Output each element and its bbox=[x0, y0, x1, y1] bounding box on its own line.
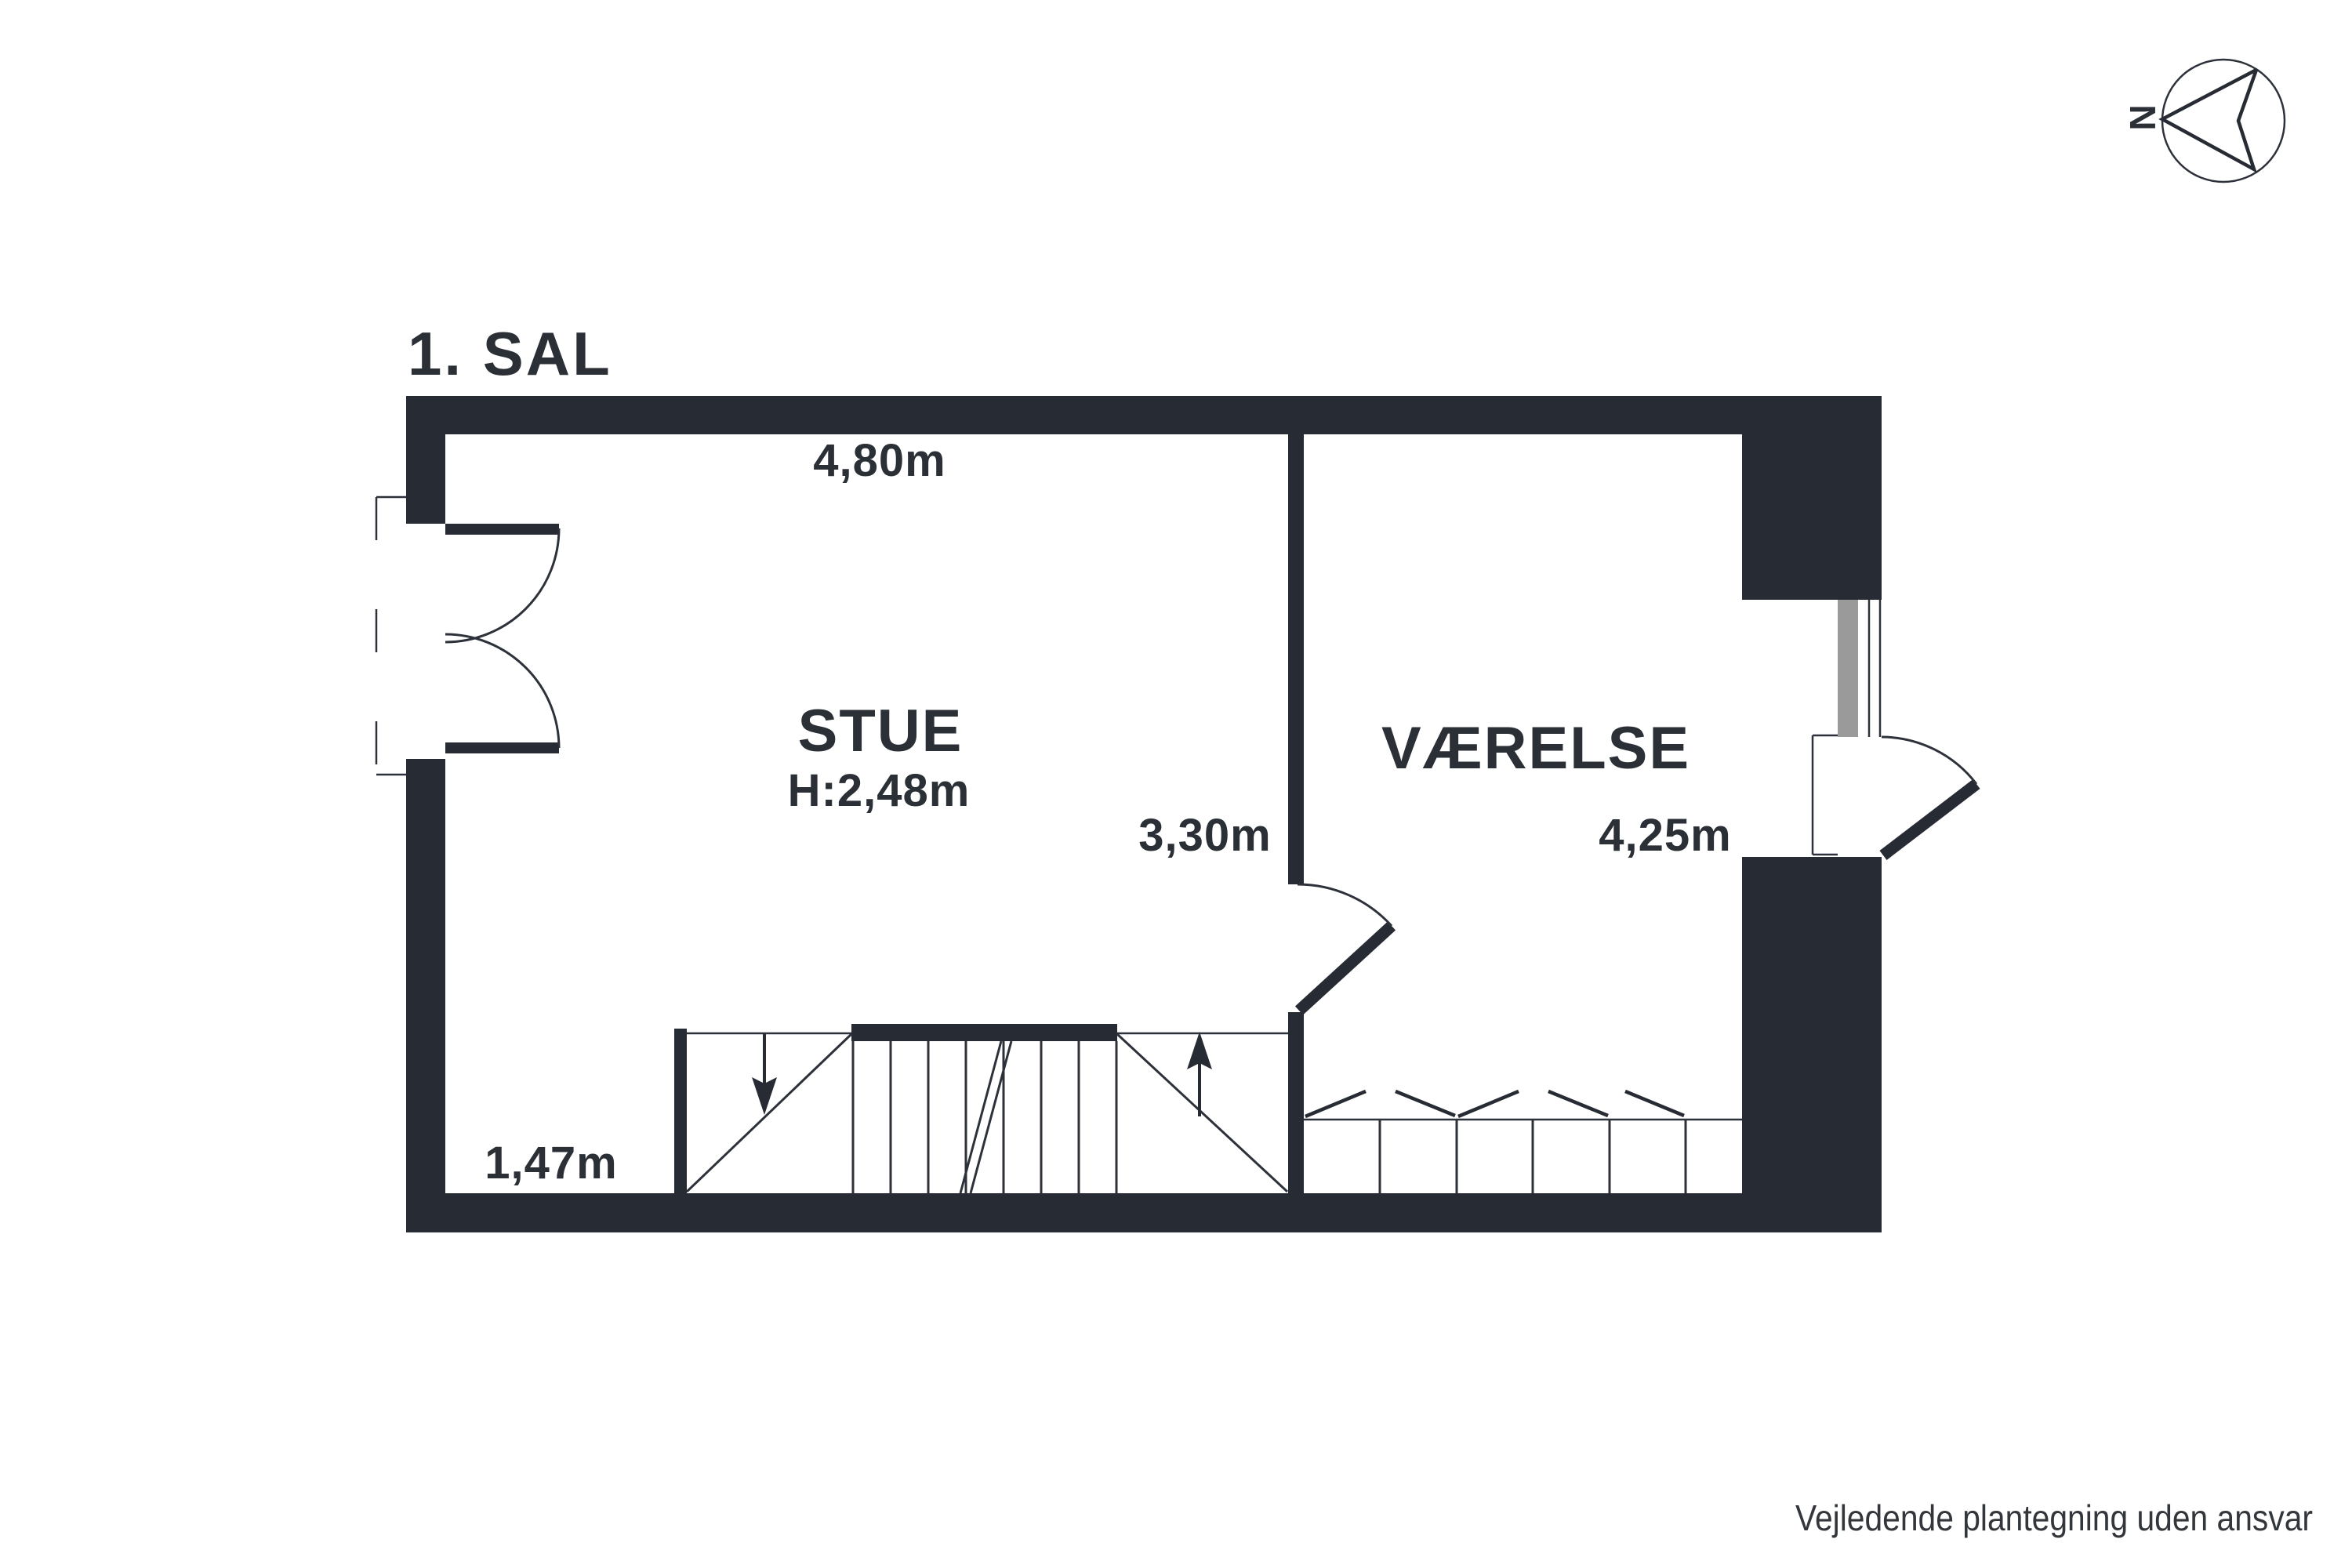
wall-right-lower-block bbox=[1742, 857, 1882, 1193]
divider-wall-upper bbox=[1288, 434, 1304, 884]
wardrobe-door-marks bbox=[1305, 1091, 1684, 1116]
interior-door bbox=[1298, 884, 1392, 1011]
stair-break-line-2 bbox=[971, 1041, 1011, 1193]
disclaimer-text: Vejledende plantegning uden ansvar bbox=[1795, 1497, 2313, 1538]
dim-vaerelse-width: 4,25m bbox=[1599, 810, 1731, 861]
room-label-stue: STUE bbox=[798, 698, 964, 764]
french-door-leaf-bottom bbox=[445, 742, 559, 753]
floor-title: 1. SAL bbox=[408, 319, 612, 388]
exterior-door-swing bbox=[1882, 737, 1976, 784]
balcony-doors bbox=[376, 497, 559, 775]
floorplan-page: N 1. SAL bbox=[0, 0, 2352, 1568]
french-door-swing-bottom bbox=[445, 634, 559, 748]
exterior-door bbox=[1813, 735, 1976, 855]
ceiling-height-stue: H:2,48m bbox=[788, 765, 971, 816]
stair-diagonal-left bbox=[687, 1034, 851, 1192]
divider-wall-lower bbox=[1288, 1012, 1304, 1193]
wall-left-upper bbox=[406, 396, 445, 524]
interior-wall bbox=[1288, 434, 1304, 1193]
wardrobe-dividers bbox=[1380, 1120, 1686, 1193]
dim-stue-depth: 3,30m bbox=[1138, 810, 1271, 861]
compass-circle bbox=[2162, 60, 2285, 182]
floorplan-canvas: N 1. SAL bbox=[0, 0, 2352, 1568]
wall-bottom bbox=[406, 1193, 1882, 1232]
wall-left-lower bbox=[406, 759, 445, 1232]
stair-landing-edge bbox=[851, 1024, 1117, 1041]
interior-door-leaf bbox=[1299, 926, 1392, 1011]
french-door-swing-top bbox=[445, 528, 559, 642]
wardrobe bbox=[1304, 1091, 1742, 1193]
exterior-door-leaf bbox=[1883, 784, 1976, 855]
stair-treads bbox=[853, 1041, 1116, 1193]
window-sash bbox=[1838, 600, 1858, 737]
interior-door-swing bbox=[1298, 884, 1392, 926]
dim-stair-width: 1,47m bbox=[485, 1138, 617, 1189]
compass-north-label: N bbox=[2122, 104, 2163, 130]
stair-down-arrow-icon bbox=[752, 1034, 777, 1115]
north-arrow-icon bbox=[2162, 70, 2256, 169]
dim-stue-width: 4,80m bbox=[813, 435, 946, 486]
wall-top bbox=[406, 396, 1882, 434]
stair-left-post bbox=[674, 1029, 687, 1193]
window-right bbox=[1838, 600, 1880, 737]
french-door-leaf-top bbox=[445, 524, 559, 535]
room-label-vaerelse: VÆRELSE bbox=[1381, 715, 1690, 782]
staircase bbox=[674, 1024, 1288, 1193]
wall-right-upper-block bbox=[1742, 396, 1882, 600]
compass: N bbox=[2122, 60, 2285, 182]
